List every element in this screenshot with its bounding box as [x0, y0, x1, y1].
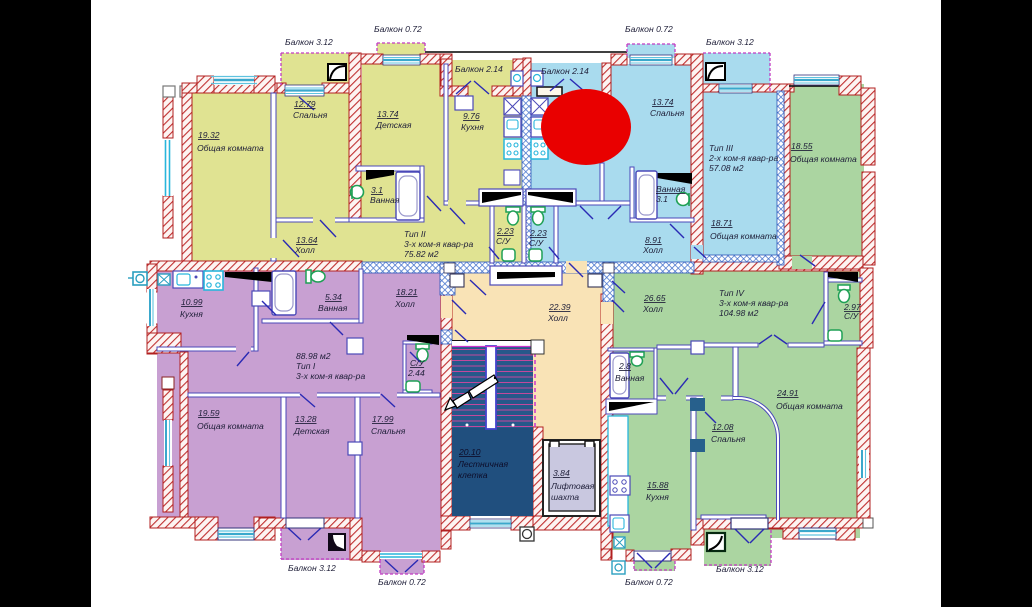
- svg-text:88.98 м2: 88.98 м2: [296, 351, 331, 361]
- svg-text:Общая комната: Общая комната: [776, 401, 843, 411]
- svg-text:Балкон 0.72: Балкон 0.72: [625, 577, 673, 587]
- svg-text:Ванная: Ванная: [656, 184, 686, 194]
- svg-text:Общая комната: Общая комната: [197, 421, 264, 431]
- svg-text:С/У: С/У: [410, 358, 426, 368]
- svg-text:Кухня: Кухня: [180, 309, 203, 319]
- svg-text:Балкон 3.12: Балкон 3.12: [285, 37, 333, 47]
- svg-text:3.1: 3.1: [371, 185, 383, 195]
- svg-text:С/У: С/У: [496, 236, 512, 246]
- svg-text:5.34: 5.34: [325, 292, 342, 302]
- svg-text:2-х ком-я квар-ра: 2-х ком-я квар-ра: [708, 153, 778, 163]
- svg-text:Балкон 3.12: Балкон 3.12: [288, 563, 336, 573]
- svg-text:13.74: 13.74: [652, 97, 674, 107]
- svg-text:Балкон 2.14: Балкон 2.14: [541, 66, 589, 76]
- svg-text:19.32: 19.32: [198, 130, 220, 140]
- svg-text:Балкон 0.72: Балкон 0.72: [374, 24, 422, 34]
- svg-text:Ванная: Ванная: [370, 195, 400, 205]
- svg-text:2.23: 2.23: [496, 226, 514, 236]
- svg-text:Лифтовая: Лифтовая: [550, 481, 595, 491]
- svg-text:9.76: 9.76: [463, 111, 480, 121]
- svg-text:Балкон 0.72: Балкон 0.72: [378, 577, 426, 587]
- svg-text:Лестничная: Лестничная: [457, 459, 508, 469]
- svg-text:19.59: 19.59: [198, 408, 220, 418]
- svg-text:8.91: 8.91: [645, 235, 662, 245]
- svg-text:С/У: С/У: [844, 311, 860, 321]
- svg-text:клетка: клетка: [458, 470, 488, 480]
- svg-text:26.65: 26.65: [643, 293, 666, 303]
- svg-text:Детская: Детская: [293, 426, 330, 436]
- svg-text:Кухня: Кухня: [461, 122, 484, 132]
- svg-text:12.08: 12.08: [712, 422, 734, 432]
- svg-text:Холл: Холл: [642, 245, 663, 255]
- svg-text:3.1: 3.1: [656, 194, 668, 204]
- svg-text:С/У: С/У: [529, 238, 545, 248]
- svg-text:18.55: 18.55: [791, 141, 813, 151]
- svg-text:Кухня: Кухня: [646, 492, 669, 502]
- svg-text:Ванная: Ванная: [318, 303, 348, 313]
- svg-text:Балкон 2.14: Балкон 2.14: [455, 64, 503, 74]
- svg-text:2.8: 2.8: [618, 361, 631, 371]
- svg-text:3.84: 3.84: [553, 468, 570, 478]
- svg-text:13.74: 13.74: [377, 109, 399, 119]
- svg-text:Спальня: Спальня: [371, 426, 406, 436]
- svg-text:Тип IV: Тип IV: [719, 288, 745, 298]
- svg-text:3-х ком-я квар-ра: 3-х ком-я квар-ра: [296, 371, 365, 381]
- svg-text:Балкон 0.72: Балкон 0.72: [625, 24, 673, 34]
- svg-text:17.99: 17.99: [372, 414, 394, 424]
- svg-text:20.10: 20.10: [458, 447, 481, 457]
- svg-text:12.79: 12.79: [294, 99, 316, 109]
- svg-text:Спальня: Спальня: [293, 110, 328, 120]
- svg-text:75.82 м2: 75.82 м2: [404, 249, 439, 259]
- svg-text:Холл: Холл: [394, 299, 415, 309]
- svg-text:Общая комната: Общая комната: [710, 231, 777, 241]
- svg-text:22.39: 22.39: [548, 302, 571, 312]
- svg-text:Холл: Холл: [547, 313, 568, 323]
- svg-text:2.44: 2.44: [407, 368, 425, 378]
- svg-text:Балкон 3.12: Балкон 3.12: [706, 37, 754, 47]
- svg-text:57.08 м2: 57.08 м2: [709, 163, 744, 173]
- svg-text:Спальня: Спальня: [650, 108, 685, 118]
- svg-text:24.91: 24.91: [776, 388, 799, 398]
- svg-text:Тип I: Тип I: [296, 361, 316, 371]
- svg-text:18.71: 18.71: [711, 218, 733, 228]
- svg-text:Общая комната: Общая комната: [790, 154, 857, 164]
- svg-text:18.21: 18.21: [396, 287, 418, 297]
- svg-text:15.88: 15.88: [647, 480, 669, 490]
- svg-text:Тип II: Тип II: [404, 229, 426, 239]
- svg-text:Детская: Детская: [375, 120, 412, 130]
- svg-text:104.98 м2: 104.98 м2: [719, 308, 759, 318]
- svg-text:3-х ком-я квар-ра: 3-х ком-я квар-ра: [719, 298, 788, 308]
- svg-text:Тип III: Тип III: [709, 143, 734, 153]
- svg-text:13.64: 13.64: [296, 235, 318, 245]
- svg-text:2.23: 2.23: [529, 228, 547, 238]
- svg-text:10.99: 10.99: [181, 297, 203, 307]
- svg-text:шахта: шахта: [551, 492, 579, 502]
- svg-text:Балкон 3.12: Балкон 3.12: [716, 564, 764, 574]
- svg-text:Спальня: Спальня: [711, 434, 746, 444]
- svg-text:Холл: Холл: [294, 245, 315, 255]
- svg-text:Общая комната: Общая комната: [197, 143, 264, 153]
- svg-text:Ванная: Ванная: [615, 373, 645, 383]
- svg-text:3-х ком-я квар-ра: 3-х ком-я квар-ра: [404, 239, 473, 249]
- svg-text:Холл: Холл: [642, 304, 663, 314]
- svg-text:13.28: 13.28: [295, 414, 317, 424]
